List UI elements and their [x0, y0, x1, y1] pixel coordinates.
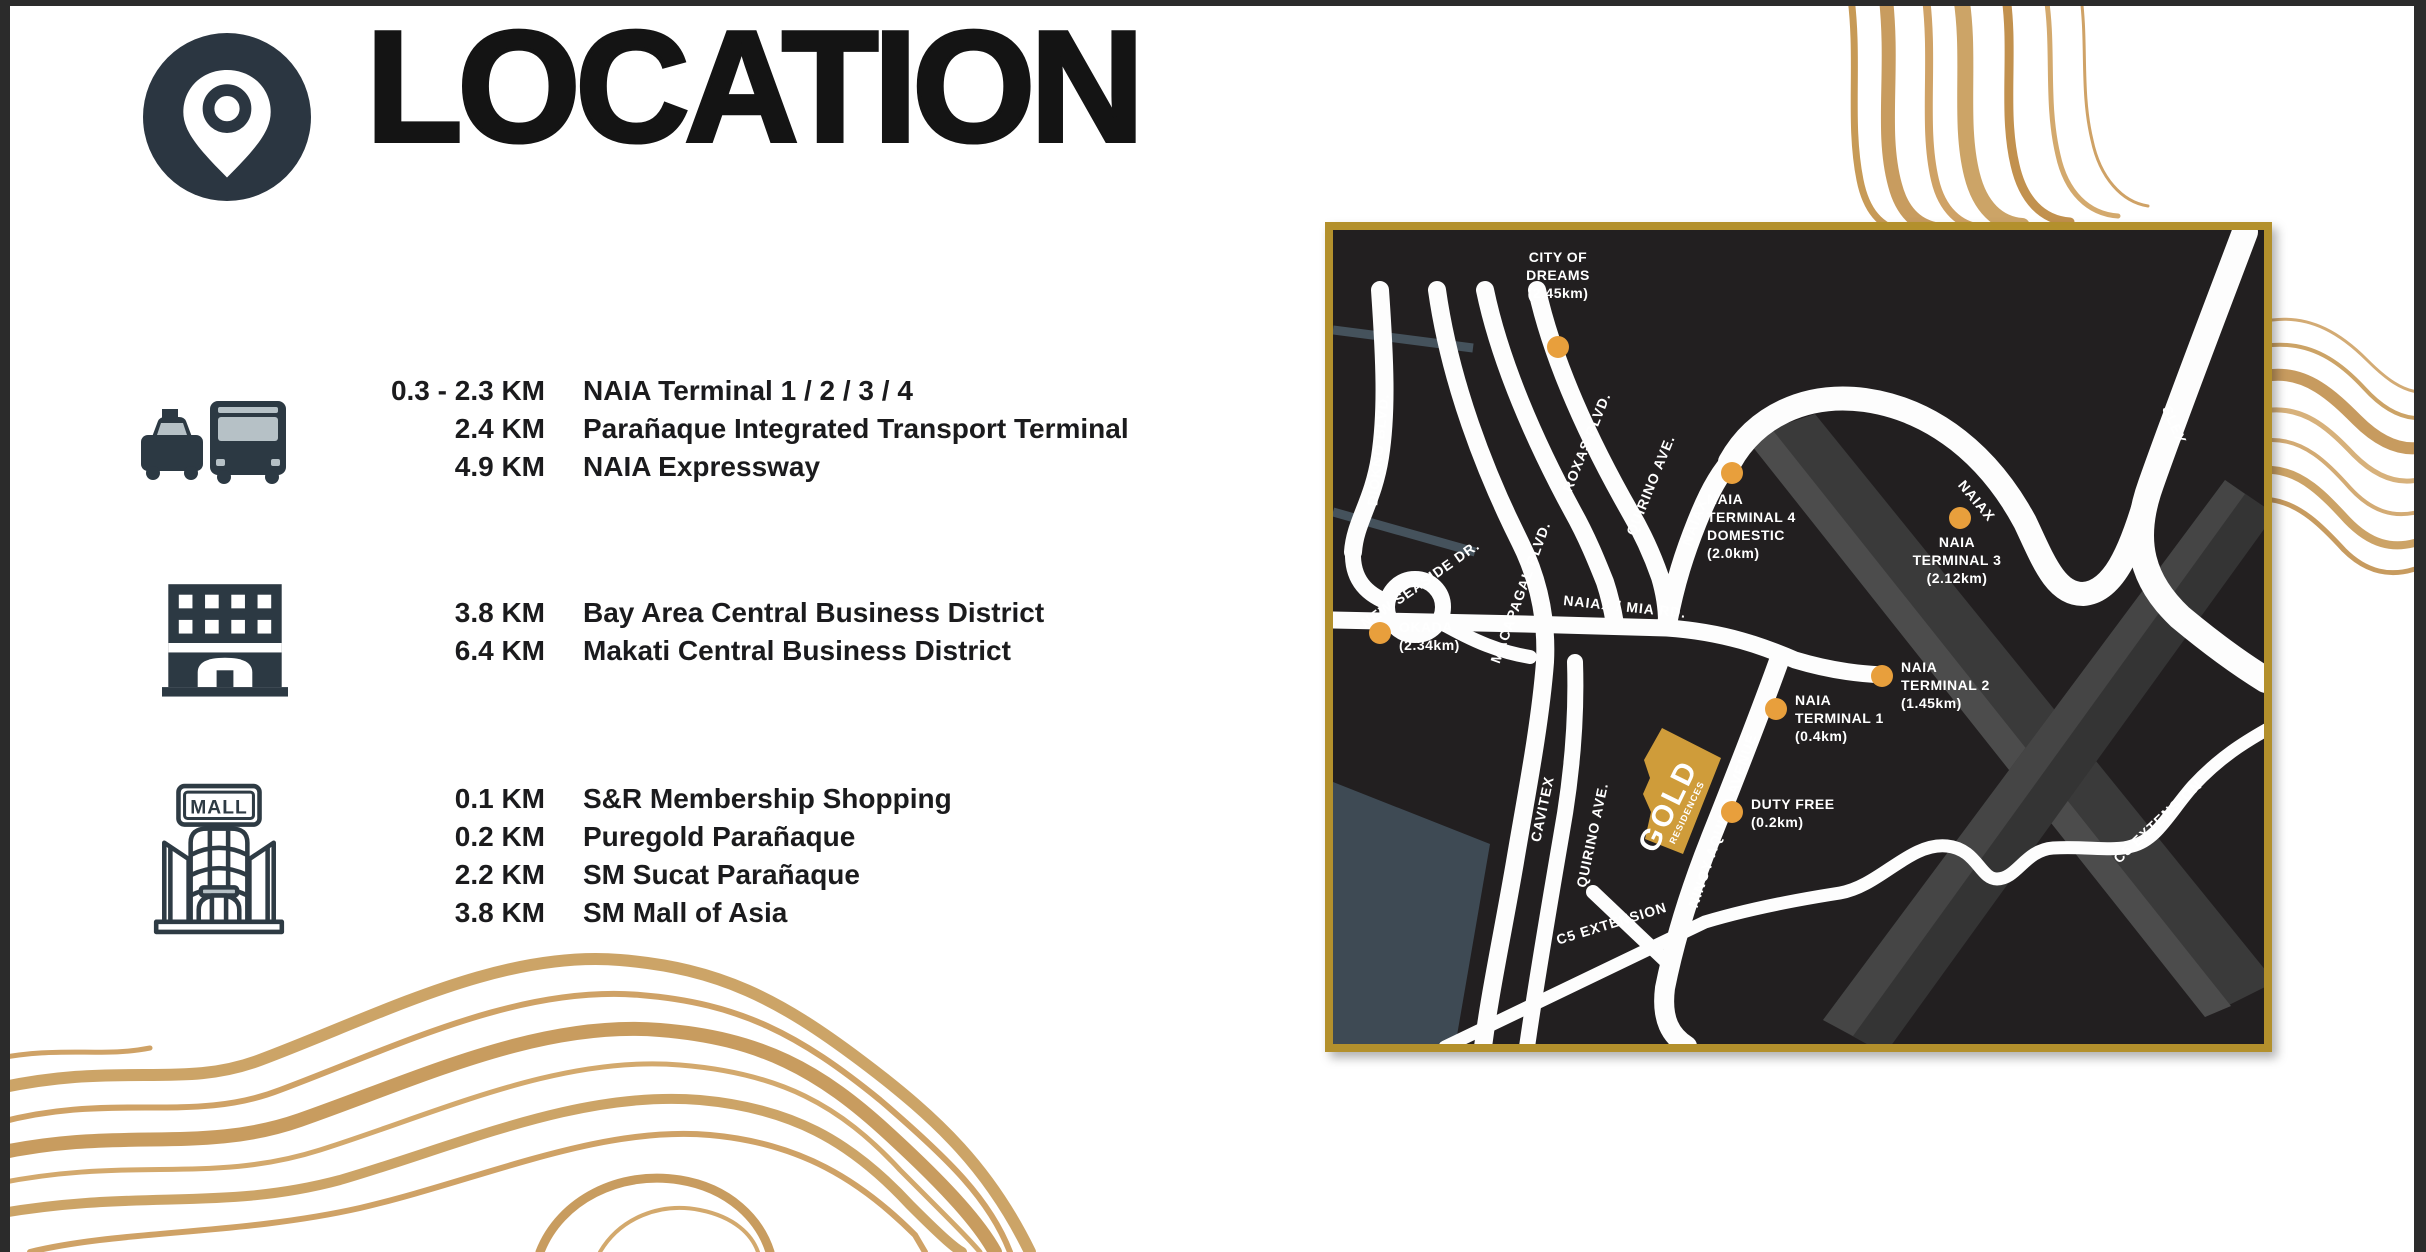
distance-value: 3.8 KM	[380, 597, 545, 629]
distance-row: 0.2 KM Puregold Parañaque	[380, 818, 952, 856]
distance-row: 0.1 KM S&R Membership Shopping	[380, 780, 952, 818]
screen-edge-top	[0, 0, 2426, 6]
place-name: Bay Area Central Business District	[583, 597, 1044, 629]
distance-row: 2.4 KM Parañaque Integrated Transport Te…	[380, 410, 1129, 448]
location-pin-icon	[143, 33, 311, 201]
mall-icon: MALL	[148, 782, 290, 936]
group-malls: MALL 0.1 KM S&R Membership Shopping 0.2 …	[0, 780, 1200, 950]
poi-label: (2.45km)	[1528, 285, 1589, 301]
place-name: Makati Central Business District	[583, 635, 1011, 667]
poi-label: NAIA	[1939, 534, 1975, 550]
poi-label: TERMINAL 3	[1913, 552, 2002, 568]
group-business: 3.8 KM Bay Area Central Business Distric…	[0, 594, 1200, 714]
poi-marker-naia-terminal-4	[1721, 462, 1743, 484]
poi-label: DOMESTIC	[1707, 527, 1785, 543]
poi-marker-naia-terminal-2	[1871, 665, 1893, 687]
poi-label: (2.0km)	[1707, 545, 1760, 561]
poi-marker-naia-terminal-1	[1765, 698, 1787, 720]
place-name: NAIA Expressway	[583, 451, 820, 483]
poi-label: (0.2km)	[1751, 814, 1804, 830]
gold-swirl-right-side	[2272, 300, 2418, 600]
poi-marker-city-of-dreams	[1547, 336, 1569, 358]
gold-swirl-top-right	[1830, 0, 2160, 235]
poi-marker-duty-free	[1721, 801, 1743, 823]
poi-label: (2.34km)	[1399, 637, 1460, 653]
distance-value: 2.2 KM	[380, 859, 545, 891]
distance-value: 2.4 KM	[380, 413, 545, 445]
poi-label: TERMINAL 1	[1795, 710, 1884, 726]
distance-value: 0.1 KM	[380, 783, 545, 815]
distance-row: 3.8 KM SM Mall of Asia	[380, 894, 952, 932]
distance-value: 4.9 KM	[380, 451, 545, 483]
place-name: SM Mall of Asia	[583, 897, 787, 929]
transport-icon	[138, 385, 288, 490]
distance-row: 2.2 KM SM Sucat Parañaque	[380, 856, 952, 894]
poi-label: NAIA	[1707, 491, 1743, 507]
distance-value: 3.8 KM	[380, 897, 545, 929]
poi-label: (2.12km)	[1927, 570, 1988, 586]
poi-label: (1.45km)	[1901, 695, 1962, 711]
place-name: NAIA Terminal 1 / 2 / 3 / 4	[583, 375, 913, 407]
group-transport: 0.3 - 2.3 KM NAIA Terminal 1 / 2 / 3 / 4…	[0, 372, 1200, 492]
poi-marker-naia-terminal-3	[1949, 507, 1971, 529]
mall-sign-label: MALL	[190, 797, 248, 818]
gold-swirl-bottom-left	[0, 940, 1040, 1252]
poi-label: TERMINAL 4	[1707, 509, 1796, 525]
poi-label: OKADA	[1399, 619, 1453, 635]
distance-row: 0.3 - 2.3 KM NAIA Terminal 1 / 2 / 3 / 4	[380, 372, 1129, 410]
distance-value: 6.4 KM	[380, 635, 545, 667]
poi-label: NAIA	[1901, 659, 1937, 675]
poi-label: CITY OF	[1529, 249, 1587, 265]
distance-value: 0.2 KM	[380, 821, 545, 853]
place-name: S&R Membership Shopping	[583, 783, 952, 815]
vicinity-map: GOLD RESIDENCES DIOKNO BLVD. MACAPAGAL B…	[1325, 222, 2272, 1052]
distance-row: 6.4 KM Makati Central Business District	[380, 632, 1044, 670]
poi-label: DREAMS	[1526, 267, 1590, 283]
place-name: Parañaque Integrated Transport Terminal	[583, 413, 1129, 445]
page-title: LOCATION	[366, 8, 1139, 166]
place-name: SM Sucat Parañaque	[583, 859, 860, 891]
poi-label: NAIA	[1795, 692, 1831, 708]
poi-label: DUTY FREE	[1751, 796, 1835, 812]
place-name: Puregold Parañaque	[583, 821, 855, 853]
distance-row: 4.9 KM NAIA Expressway	[380, 448, 1129, 486]
screen-edge-right	[2414, 0, 2426, 1252]
location-slide: LOCATION 0.3 - 2.3 KM NAIA Terminal 1 / …	[0, 0, 2426, 1252]
distance-value: 0.3 - 2.3 KM	[380, 375, 545, 407]
poi-label: TERMINAL 2	[1901, 677, 1990, 693]
poi-marker-okada	[1369, 622, 1391, 644]
poi-label: (0.4km)	[1795, 728, 1848, 744]
map-canvas: GOLD RESIDENCES DIOKNO BLVD. MACAPAGAL B…	[1325, 222, 2272, 1052]
screen-edge-left	[0, 0, 10, 1252]
distance-row: 3.8 KM Bay Area Central Business Distric…	[380, 594, 1044, 632]
building-icon	[162, 584, 288, 702]
